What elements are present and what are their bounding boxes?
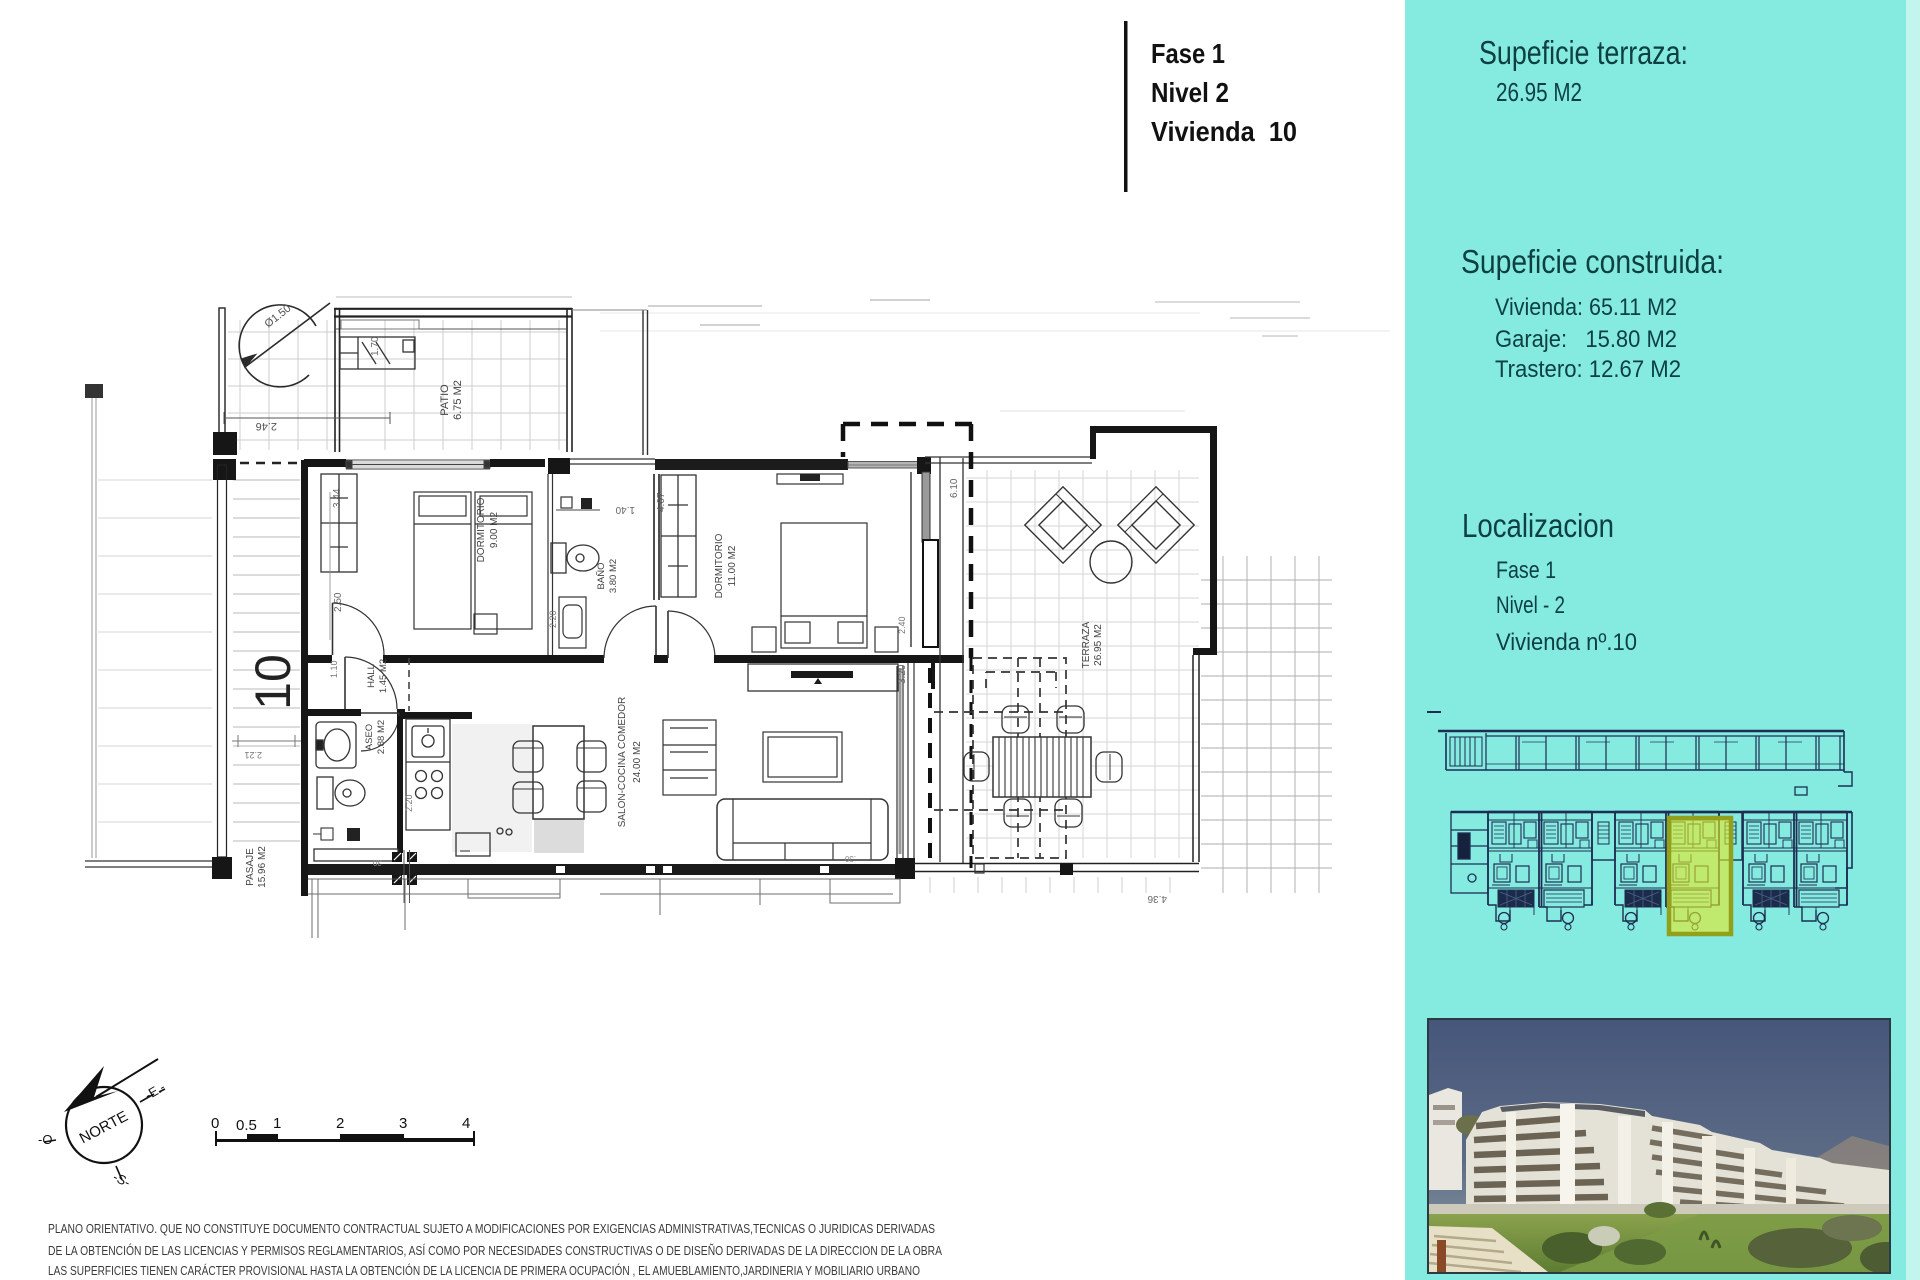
svg-text:3.80 M2: 3.80 M2 <box>608 559 619 593</box>
svg-text:1.45 M2: 1.45 M2 <box>378 659 389 693</box>
svg-text:2.50: 2.50 <box>333 592 344 612</box>
svg-text:Supeficie construida:: Supeficie construida: <box>1461 243 1724 280</box>
svg-text:Vivienda: 65.11 M2: Vivienda: 65.11 M2 <box>1495 294 1677 321</box>
svg-text:15.96 M2: 15.96 M2 <box>257 846 268 888</box>
svg-text:Fase 1: Fase 1 <box>1151 38 1225 69</box>
svg-text:DORMITORIO: DORMITORIO <box>476 497 487 562</box>
svg-text:-O: -O <box>38 1132 52 1147</box>
svg-text:Nivel 2: Nivel 2 <box>1151 77 1229 108</box>
svg-text:PATIO: PATIO <box>439 384 451 416</box>
svg-text:Localizacion: Localizacion <box>1462 507 1614 544</box>
svg-text:2.88 M2: 2.88 M2 <box>376 720 387 754</box>
svg-text:Vivienda 10: Vivienda 10 <box>1151 116 1297 147</box>
svg-text:ASEO: ASEO <box>364 724 375 750</box>
svg-text:DORMITORIO: DORMITORIO <box>714 533 725 598</box>
svg-text:11.00 M2: 11.00 M2 <box>727 545 738 586</box>
svg-text:26.95 M2: 26.95 M2 <box>1496 77 1582 107</box>
svg-text:3.20: 3.20 <box>897 664 908 684</box>
svg-text:0.5: 0.5 <box>236 1117 257 1134</box>
svg-text:.30: .30 <box>372 858 384 867</box>
svg-text:4: 4 <box>462 1115 470 1132</box>
svg-text:9.00 M2: 9.00 M2 <box>489 511 500 548</box>
svg-text:0: 0 <box>211 1115 219 1132</box>
svg-text:Fase 1: Fase 1 <box>1496 557 1556 584</box>
svg-text:Supeficie terraza:: Supeficie terraza: <box>1479 34 1688 71</box>
svg-text:1.10: 1.10 <box>329 660 339 678</box>
svg-text:1.70: 1.70 <box>370 336 381 356</box>
svg-text:Vivienda nº.10: Vivienda nº.10 <box>1496 629 1637 656</box>
svg-text:2.20: 2.20 <box>548 610 558 628</box>
svg-text:2.40: 2.40 <box>897 616 907 634</box>
svg-text:Nivel - 2: Nivel - 2 <box>1496 592 1565 619</box>
svg-text:2.20: 2.20 <box>404 794 414 812</box>
svg-text:.30: .30 <box>844 854 856 863</box>
svg-text:2.46: 2.46 <box>256 420 277 432</box>
svg-text:6.75 M2: 6.75 M2 <box>452 380 464 420</box>
svg-text:PLANO ORIENTATIVO. QUE NO CONS: PLANO ORIENTATIVO. QUE NO CONSTITUYE DOC… <box>48 1222 935 1236</box>
svg-text:2.21: 2.21 <box>244 750 262 760</box>
svg-text:3.44: 3.44 <box>332 488 343 508</box>
svg-text:1.40: 1.40 <box>615 504 635 515</box>
svg-text:4.36: 4.36 <box>1147 893 1167 904</box>
svg-text:PASAJE: PASAJE <box>245 848 256 886</box>
svg-text:Trastero: 12.67 M2: Trastero: 12.67 M2 <box>1495 356 1681 383</box>
svg-text:DE LA OBTENCIÓN DE LAS LICENCI: DE LA OBTENCIÓN DE LAS LICENCIAS Y PERMI… <box>48 1243 943 1258</box>
svg-text:1: 1 <box>273 1115 281 1132</box>
svg-text:LAS SUPERFICIES TIENEN CARÁCTE: LAS SUPERFICIES TIENEN CARÁCTER PROVISIO… <box>48 1263 920 1278</box>
svg-text:3: 3 <box>399 1115 407 1132</box>
svg-text:2: 2 <box>336 1115 344 1132</box>
svg-text:6.10: 6.10 <box>949 478 960 498</box>
svg-text:24.00 M2: 24.00 M2 <box>632 741 643 783</box>
svg-text:Garaje: 15.80 M2: Garaje: 15.80 M2 <box>1495 326 1677 353</box>
svg-text:TERRAZA: TERRAZA <box>1081 621 1092 668</box>
svg-text:SALON-COCINA COMEDOR: SALON-COCINA COMEDOR <box>617 697 628 828</box>
svg-text:26.95 M2: 26.95 M2 <box>1093 624 1104 666</box>
svg-text:HALL: HALL <box>366 664 377 688</box>
svg-text:10: 10 <box>245 654 301 710</box>
svg-text:BAÑO: BAÑO <box>596 563 607 590</box>
